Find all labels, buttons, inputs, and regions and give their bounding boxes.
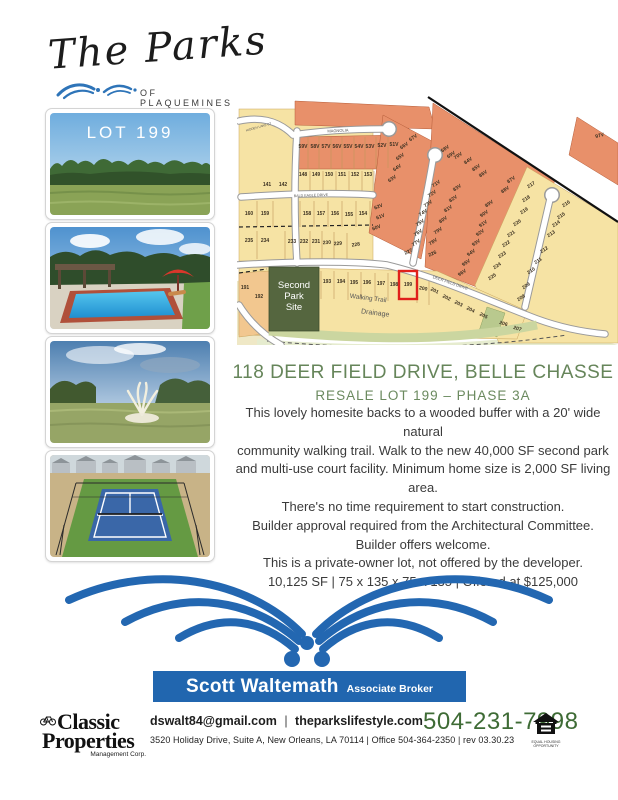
svg-text:232: 232 bbox=[300, 239, 309, 245]
svg-text:228: 228 bbox=[351, 241, 360, 248]
parks-logo-script: The Parks bbox=[47, 19, 245, 78]
lot-photo-label: LOT 199 bbox=[46, 123, 214, 143]
svg-text:142: 142 bbox=[279, 182, 288, 188]
svg-text:57V: 57V bbox=[322, 144, 332, 150]
svg-text:58V: 58V bbox=[311, 144, 321, 150]
svg-text:152: 152 bbox=[351, 172, 360, 178]
svg-text:54V: 54V bbox=[355, 144, 365, 150]
agent-role: Associate Broker bbox=[347, 679, 433, 695]
svg-text:53V: 53V bbox=[366, 144, 376, 150]
tennis-photo bbox=[45, 450, 215, 562]
svg-text:230: 230 bbox=[323, 240, 332, 247]
equal-housing-icon bbox=[533, 713, 559, 735]
flyer-page: The Parks OF PLAQUEMINES LOT 199 bbox=[0, 0, 618, 800]
parks-logo-subtitle: OF PLAQUEMINES bbox=[140, 88, 243, 108]
agent-banner: Scott Waltemath Associate Broker bbox=[153, 671, 466, 702]
svg-text:Park: Park bbox=[284, 291, 304, 302]
office-address-line: 3520 Holiday Drive, Suite A, New Orleans… bbox=[150, 735, 530, 745]
fountain-photo bbox=[45, 336, 215, 448]
svg-text:56V: 56V bbox=[333, 144, 343, 150]
separator: | bbox=[280, 714, 291, 728]
svg-text:194: 194 bbox=[337, 279, 346, 285]
property-address-title: 118 DEER FIELD DRIVE, BELLE CHASSE bbox=[227, 362, 618, 384]
svg-text:52V: 52V bbox=[378, 143, 388, 149]
bicycle-icon bbox=[40, 714, 56, 726]
svg-text:148: 148 bbox=[299, 172, 308, 178]
fountain-splash-graphic bbox=[55, 558, 563, 670]
description-line: There's no time requirement to start con… bbox=[225, 498, 618, 517]
svg-text:160: 160 bbox=[245, 211, 254, 217]
description-line: and multi-use court facility. Minimum ho… bbox=[225, 460, 618, 498]
svg-text:233: 233 bbox=[288, 239, 297, 245]
parks-logo: The Parks OF PLAQUEMINES bbox=[48, 26, 243, 106]
description-line: community walking trail. Walk to the new… bbox=[225, 442, 618, 461]
svg-text:55V: 55V bbox=[344, 144, 354, 150]
description-line: Builder approval required from the Archi… bbox=[225, 517, 618, 536]
svg-text:151: 151 bbox=[338, 172, 347, 178]
svg-text:191: 191 bbox=[241, 285, 250, 291]
svg-text:195: 195 bbox=[350, 280, 359, 286]
svg-text:Site: Site bbox=[286, 302, 302, 313]
svg-text:150: 150 bbox=[325, 172, 334, 178]
svg-text:159: 159 bbox=[261, 211, 270, 217]
svg-text:192: 192 bbox=[255, 294, 264, 300]
pool-photo bbox=[45, 222, 215, 334]
svg-text:199: 199 bbox=[404, 282, 413, 288]
svg-text:153: 153 bbox=[364, 172, 373, 178]
svg-text:198: 198 bbox=[390, 282, 399, 288]
pool-photo-image bbox=[50, 227, 210, 329]
equal-housing-logo: EQUAL HOUSING OPPORTUNITY bbox=[528, 713, 564, 748]
tennis-photo-image bbox=[50, 455, 210, 557]
agent-name: Scott Waltemath bbox=[186, 676, 339, 698]
plat-map: SecondParkSite MAGNOLIAHIDDEN LAKE CTBAL… bbox=[237, 95, 618, 345]
svg-text:141: 141 bbox=[263, 182, 272, 188]
svg-text:229: 229 bbox=[334, 241, 343, 248]
svg-text:155: 155 bbox=[345, 212, 354, 218]
svg-text:154: 154 bbox=[359, 211, 368, 217]
description-line: This lovely homesite backs to a wooded b… bbox=[225, 404, 618, 442]
fountain-photo-image bbox=[50, 341, 210, 443]
svg-text:235: 235 bbox=[245, 238, 254, 244]
property-lot-subtitle: RESALE LOT 199 – PHASE 3A bbox=[227, 388, 618, 403]
svg-text:234: 234 bbox=[261, 238, 270, 244]
svg-text:158: 158 bbox=[303, 211, 312, 217]
svg-text:149: 149 bbox=[312, 172, 321, 178]
equal-housing-text-line2: OPPORTUNITY bbox=[528, 744, 564, 748]
splash-swoosh-icon bbox=[56, 80, 140, 104]
svg-text:157: 157 bbox=[317, 211, 326, 217]
svg-text:156: 156 bbox=[331, 211, 340, 217]
description-line: Builder offers welcome. bbox=[225, 536, 618, 555]
lot-photo: LOT 199 bbox=[45, 108, 215, 220]
svg-text:59V: 59V bbox=[299, 144, 309, 150]
brokerage-logo: Classic Properties Management Corp. bbox=[42, 712, 146, 758]
svg-text:196: 196 bbox=[363, 280, 372, 286]
svg-text:51V: 51V bbox=[390, 142, 400, 148]
svg-text:193: 193 bbox=[323, 279, 332, 285]
brokerage-name-line2: Properties bbox=[42, 731, 146, 750]
svg-text:Second: Second bbox=[278, 280, 310, 291]
agent-email[interactable]: dswalt84@gmail.com bbox=[150, 714, 277, 728]
svg-text:231: 231 bbox=[312, 239, 321, 245]
website-link[interactable]: theparkslifestyle.com bbox=[295, 714, 423, 728]
svg-text:197: 197 bbox=[377, 281, 386, 287]
property-headline: 118 DEER FIELD DRIVE, BELLE CHASSE RESAL… bbox=[227, 362, 618, 403]
